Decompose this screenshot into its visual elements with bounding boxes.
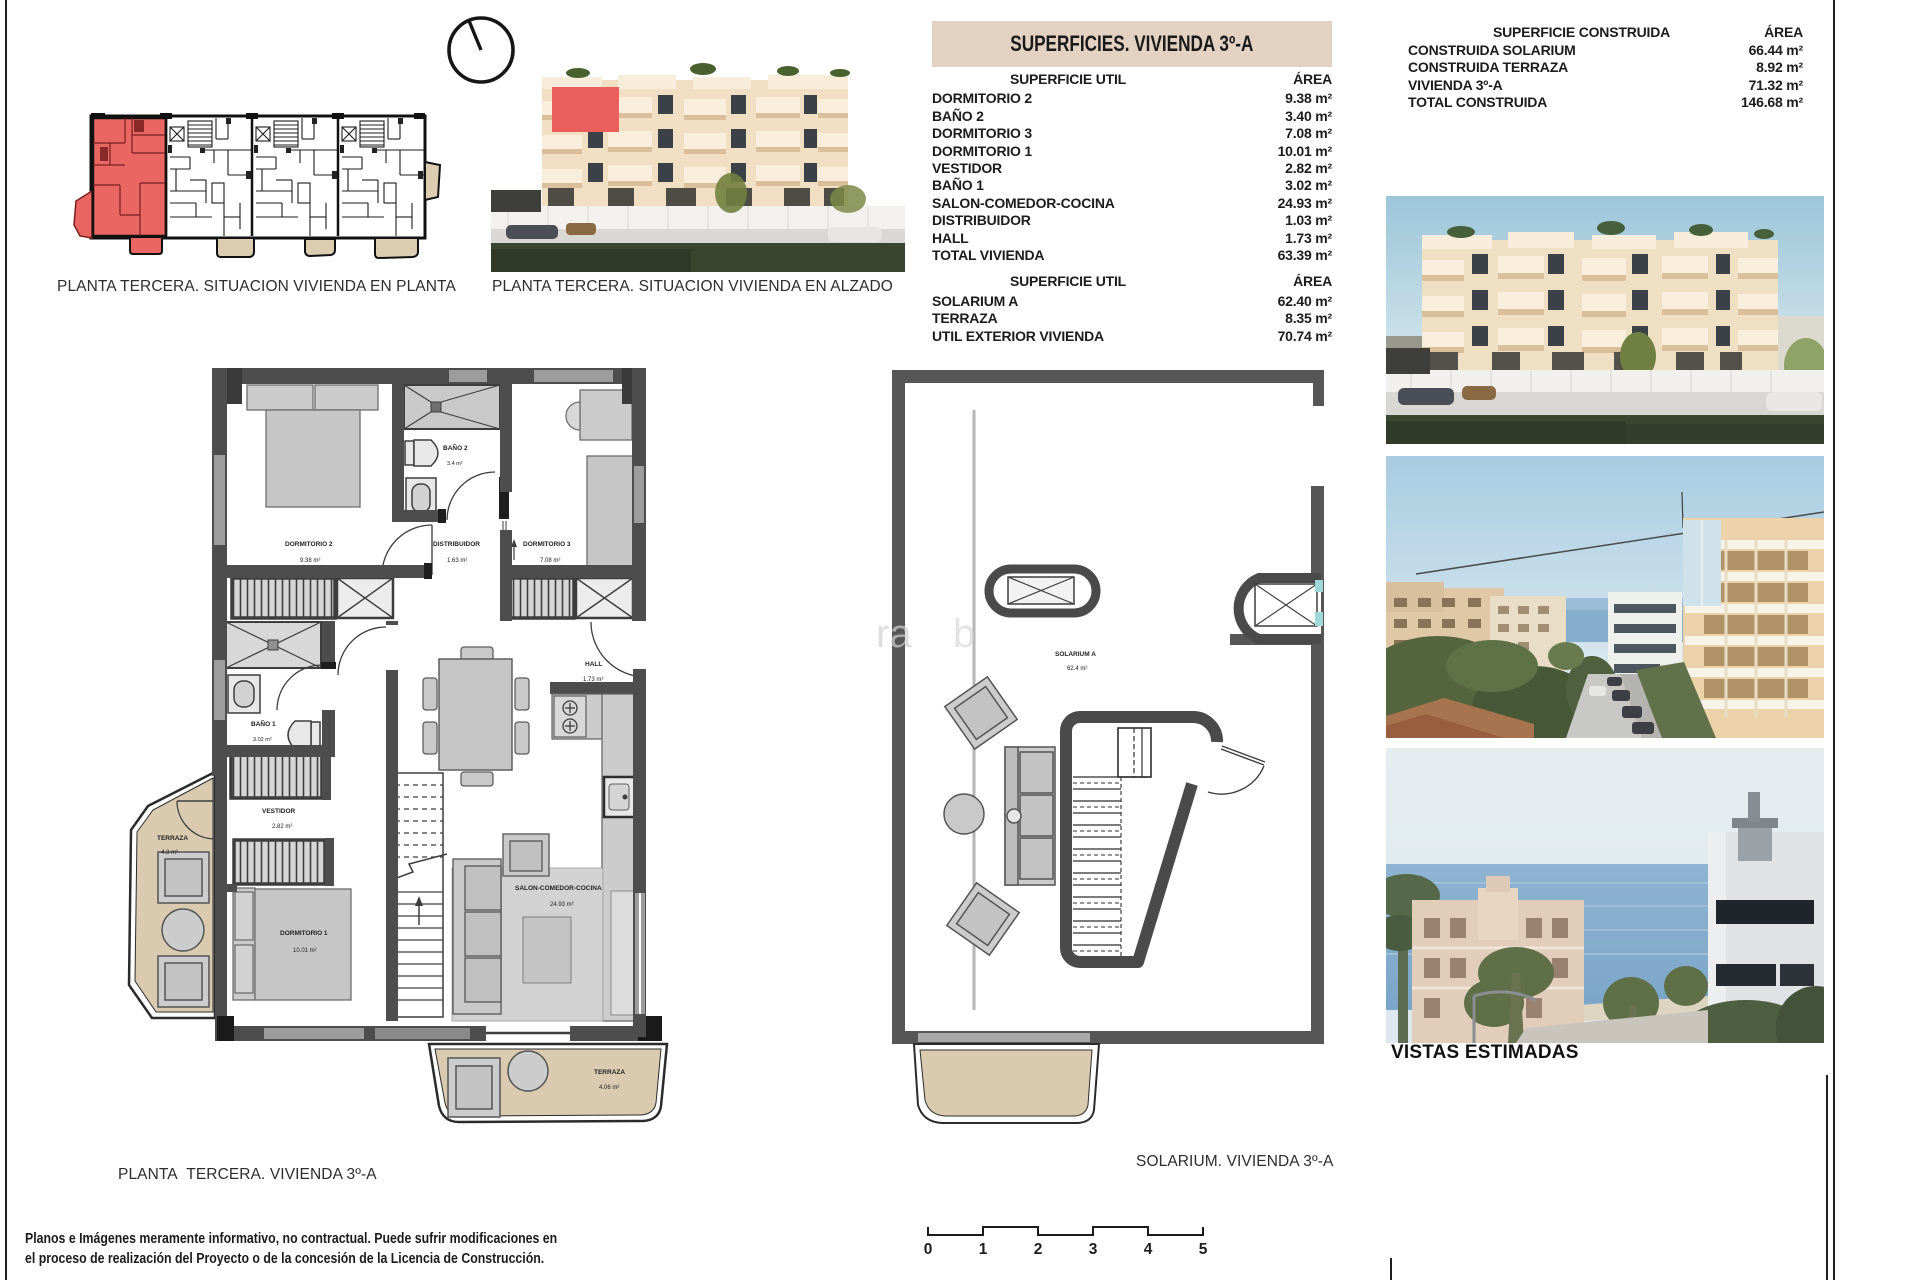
svg-text:SOLARIUM A: SOLARIUM A: [1055, 651, 1096, 658]
svg-text:BAÑO 1: BAÑO 1: [251, 719, 276, 728]
svg-text:1.73 m²: 1.73 m²: [583, 677, 603, 683]
svg-text:24.93 m²: 24.93 m²: [550, 902, 574, 908]
svg-text:2: 2: [1034, 1241, 1043, 1258]
svg-text:62.4 m²: 62.4 m²: [1067, 666, 1087, 672]
svg-text:VESTIDOR: VESTIDOR: [262, 808, 296, 815]
svg-text:SALON-COMEDOR-COCINA: SALON-COMEDOR-COCINA: [515, 885, 602, 892]
svg-text:HALL: HALL: [585, 661, 602, 668]
svg-text:3.4 m²: 3.4 m²: [447, 461, 463, 467]
svg-text:7.08 m²: 7.08 m²: [540, 558, 560, 564]
svg-text:BAÑO 2: BAÑO 2: [443, 443, 468, 452]
svg-text:DORMITORIO 3: DORMITORIO 3: [523, 541, 571, 548]
svg-text:1: 1: [979, 1241, 988, 1258]
svg-text:DISTRIBUIDOR: DISTRIBUIDOR: [433, 541, 480, 548]
svg-text:TERRAZA: TERRAZA: [157, 835, 188, 842]
svg-text:10.01 m²: 10.01 m²: [293, 948, 317, 954]
svg-text:DORMITORIO 2: DORMITORIO 2: [285, 541, 333, 548]
svg-text:0: 0: [924, 1241, 933, 1258]
svg-text:2.82 m²: 2.82 m²: [272, 824, 292, 830]
svg-text:3: 3: [1089, 1241, 1098, 1258]
svg-text:4.3 m²: 4.3 m²: [161, 850, 178, 856]
svg-text:TERRAZA: TERRAZA: [594, 1069, 625, 1076]
svg-text:3.02 m²: 3.02 m²: [253, 737, 272, 743]
svg-text:1.63 m²: 1.63 m²: [447, 558, 467, 564]
svg-text:5: 5: [1199, 1241, 1208, 1258]
svg-text:4.06 m²: 4.06 m²: [599, 1085, 619, 1091]
svg-text:4: 4: [1144, 1241, 1153, 1258]
svg-text:9.38 m²: 9.38 m²: [300, 558, 320, 564]
svg-text:DORMITORIO 1: DORMITORIO 1: [280, 930, 328, 937]
